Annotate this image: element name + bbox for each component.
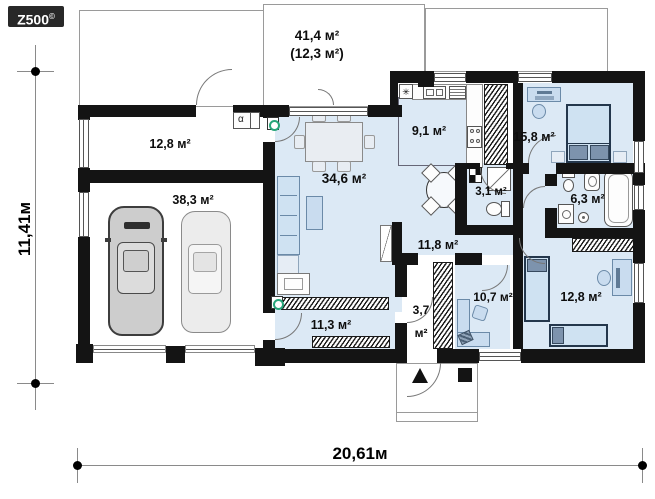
car-light-window (193, 252, 217, 272)
desk-chair-bedroom-top (532, 104, 546, 119)
ventilation-marker (271, 296, 283, 309)
window (634, 185, 644, 210)
wall (390, 71, 418, 83)
bed-pillow (569, 145, 588, 160)
toilet-bathroom-bowl (563, 179, 574, 192)
window (634, 263, 644, 303)
dining-chair (364, 135, 375, 149)
window (434, 73, 466, 82)
window (79, 119, 89, 168)
bed-pillow (590, 145, 609, 160)
open-door-leaf (380, 225, 392, 262)
dim-dot (73, 461, 82, 470)
wall (263, 105, 289, 117)
nightstand (613, 151, 627, 163)
dim-dot (638, 461, 647, 470)
wall (395, 253, 418, 265)
wall (78, 237, 90, 348)
wardrobe-top (281, 297, 389, 310)
wall (556, 163, 645, 174)
wall-post (418, 71, 434, 87)
dim-dot (31, 67, 40, 76)
wall (263, 349, 407, 363)
garage-door (93, 345, 166, 353)
desk-bedroom-top (527, 87, 561, 102)
car-dark-sunroof (124, 222, 150, 229)
car-dark-window (123, 250, 149, 272)
sliding-door-window (289, 107, 368, 116)
wall (395, 265, 407, 297)
window (479, 352, 521, 361)
floor-plan: ✳ (0, 0, 655, 499)
room-label-bedroom-bottom: 12,8 м² (551, 290, 611, 304)
car-dark-mirror-left (105, 238, 111, 242)
wall (78, 105, 196, 117)
wall-pier (166, 346, 185, 363)
room-label-wc: 3,1 м² (466, 186, 516, 198)
room-label-bedroom-top: 15,8 м² (504, 130, 564, 144)
room-label-bathroom: 6,3 м² (560, 192, 615, 206)
wall (633, 71, 645, 141)
bed-pillow (552, 327, 564, 344)
washing-machine (558, 204, 574, 224)
wardrobe-bottom (312, 336, 390, 348)
kitchen-marker-icon: ✳ (402, 87, 410, 97)
wall (263, 142, 275, 313)
boiler-marker-box: ✳ (399, 84, 413, 99)
boiler-symbol: α (238, 114, 244, 125)
kitchen-sink (423, 86, 446, 99)
z500-logo-copyright: © (49, 12, 55, 21)
wall (521, 349, 645, 363)
wall (466, 71, 518, 83)
room-label-terrace: 41,4 м² (267, 28, 367, 43)
wall (90, 170, 265, 183)
room-label-hallway: 11,8 м² (408, 238, 468, 252)
room-label-entry-line2: м² (401, 326, 441, 340)
dining-table (305, 122, 363, 162)
fireplace (277, 273, 310, 295)
wall (467, 163, 480, 169)
wall (513, 83, 523, 163)
bathroom-wardrobe (572, 238, 634, 252)
dining-chair (294, 135, 305, 149)
room-label-wardrobe-room: 11,3 м² (301, 318, 361, 332)
car-dark (108, 206, 164, 336)
z500-logo-text: Z500 (17, 12, 49, 28)
wall (552, 71, 645, 83)
z500-logo: Z500© (8, 6, 64, 27)
boiler-box: α (233, 112, 260, 129)
wall (633, 173, 645, 185)
washbasin (584, 172, 600, 191)
wall (437, 349, 479, 363)
sofa (277, 176, 300, 255)
room-label-room-107: 10,7 м² (463, 290, 523, 304)
dim-line-horizontal (77, 465, 642, 466)
wall (455, 253, 482, 265)
room-label-entry-line1: 3,7 (401, 303, 441, 317)
porch-step-line (396, 412, 478, 413)
ventilation-marker (267, 117, 279, 130)
wall-pier (76, 344, 93, 363)
sofa-chaise (277, 255, 299, 274)
garage-door (185, 345, 255, 353)
carport-area (79, 10, 265, 107)
kitchen-wardrobe (484, 84, 508, 165)
dim-label-width: 20,61м (310, 444, 410, 464)
room-label-terrace-secondary: (12,3 м²) (267, 46, 367, 61)
stove (467, 126, 482, 148)
wall (523, 163, 529, 174)
car-light (181, 211, 231, 333)
boiler-box-divider (250, 113, 251, 128)
room-label-utility: 12,8 м² (125, 137, 215, 151)
porch-column (458, 368, 472, 382)
car-dark-mirror-right (161, 238, 167, 242)
wall (78, 168, 90, 192)
window (79, 192, 89, 237)
room-label-kitchen: 9,1 м² (399, 124, 459, 138)
window (518, 73, 552, 82)
north-arrow-icon (412, 368, 428, 383)
wall (506, 163, 513, 169)
dim-dot (31, 379, 40, 388)
dim-line-vertical (35, 45, 36, 410)
roof-overhang-area (425, 8, 608, 72)
desk-bedroom-bottom (612, 259, 632, 296)
desk-chair-bedroom-bottom (597, 270, 611, 286)
room-label-garage: 38,3 м² (148, 193, 238, 207)
room-label-living: 34,6 м² (308, 171, 380, 186)
wall (545, 174, 557, 186)
wall (513, 163, 523, 235)
window (634, 141, 644, 173)
dim-label-height: 11,41м (15, 189, 35, 269)
coffee-table (306, 196, 323, 230)
wall (455, 225, 513, 235)
fridge-icon (449, 86, 466, 99)
wall (545, 228, 645, 238)
floor-drain (578, 212, 589, 223)
toilet-wc (501, 201, 510, 217)
toilet-wc-bowl (486, 202, 502, 216)
